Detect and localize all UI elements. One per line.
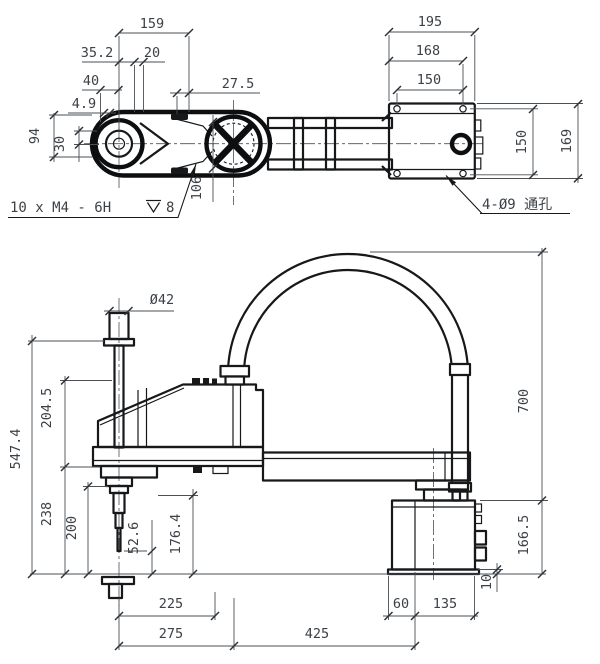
dim-169: 169 bbox=[559, 129, 575, 153]
dim-60: 60 bbox=[393, 596, 409, 612]
dim-35-2: 35.2 bbox=[81, 45, 114, 61]
dim-150-vertical: 150 bbox=[514, 130, 530, 154]
conduit-left-flange bbox=[221, 366, 250, 377]
connector-block bbox=[475, 531, 486, 545]
dim-204-5: 204.5 bbox=[39, 388, 55, 429]
dim-195: 195 bbox=[418, 14, 442, 30]
dim-275: 275 bbox=[159, 626, 183, 642]
dim-159: 159 bbox=[140, 16, 164, 32]
side-view-base bbox=[388, 501, 486, 575]
mount-hole bbox=[394, 106, 400, 112]
side-view-lower-arm bbox=[263, 453, 470, 501]
dim-166-5: 166.5 bbox=[516, 515, 532, 556]
dim-dia-42: Ø42 bbox=[150, 292, 174, 308]
dim-4-9: 4.9 bbox=[72, 96, 96, 112]
depth-symbol-icon bbox=[148, 203, 160, 213]
dim-700: 700 bbox=[516, 389, 532, 413]
dim-225: 225 bbox=[159, 596, 183, 612]
arm-slot-bottom bbox=[171, 168, 188, 175]
dim-52-6: 52.6 bbox=[126, 522, 142, 555]
dim-547-4: 547.4 bbox=[8, 429, 24, 470]
dim-106: 106 bbox=[189, 176, 205, 200]
through-hole-note: 4-Ø9 通孔 bbox=[446, 176, 570, 214]
dim-200: 200 bbox=[64, 516, 80, 540]
mount-hole bbox=[394, 170, 400, 176]
dim-425: 425 bbox=[305, 626, 329, 642]
side-view-conduit bbox=[221, 254, 472, 501]
dim-40: 40 bbox=[83, 73, 99, 89]
robot-dimension-drawing: 10 x M4 - 6H 8 4-Ø9 通孔 159 35.2 20 40 4.… bbox=[0, 0, 600, 664]
dim-20: 20 bbox=[144, 45, 160, 61]
dim-135: 135 bbox=[433, 596, 457, 612]
dim-150-width: 150 bbox=[417, 72, 441, 88]
side-view-dimension-lines bbox=[28, 248, 548, 650]
thread-note-text: 10 x M4 - 6H bbox=[10, 200, 111, 216]
connector-block bbox=[475, 548, 486, 561]
dim-168: 168 bbox=[416, 43, 440, 59]
base-plate-outline bbox=[389, 104, 475, 179]
arm-slot-top bbox=[171, 114, 188, 121]
thread-depth-value: 8 bbox=[166, 200, 174, 216]
mount-hole bbox=[460, 106, 466, 112]
drawing-page: 10 x M4 - 6H 8 4-Ø9 通孔 159 35.2 20 40 4.… bbox=[0, 0, 600, 664]
housing-lower-plate bbox=[93, 447, 263, 466]
top-view-base bbox=[389, 104, 483, 179]
thread-note: 10 x M4 - 6H 8 bbox=[8, 164, 196, 218]
dim-94: 94 bbox=[27, 128, 43, 144]
mount-hole bbox=[460, 170, 466, 176]
dim-27-5: 27.5 bbox=[222, 76, 255, 92]
conduit-inner-arc bbox=[244, 270, 452, 374]
conduit-joint-band bbox=[450, 364, 470, 375]
dim-238: 238 bbox=[39, 502, 55, 526]
side-view-housing bbox=[93, 378, 263, 474]
dim-30: 30 bbox=[52, 136, 68, 152]
dim-10: 10 bbox=[479, 574, 495, 590]
connector-block bbox=[475, 137, 483, 154]
hole-note-text: 4-Ø9 通孔 bbox=[482, 197, 552, 213]
dim-176-4: 176.4 bbox=[168, 514, 184, 555]
lower-arm-bar bbox=[263, 453, 470, 481]
